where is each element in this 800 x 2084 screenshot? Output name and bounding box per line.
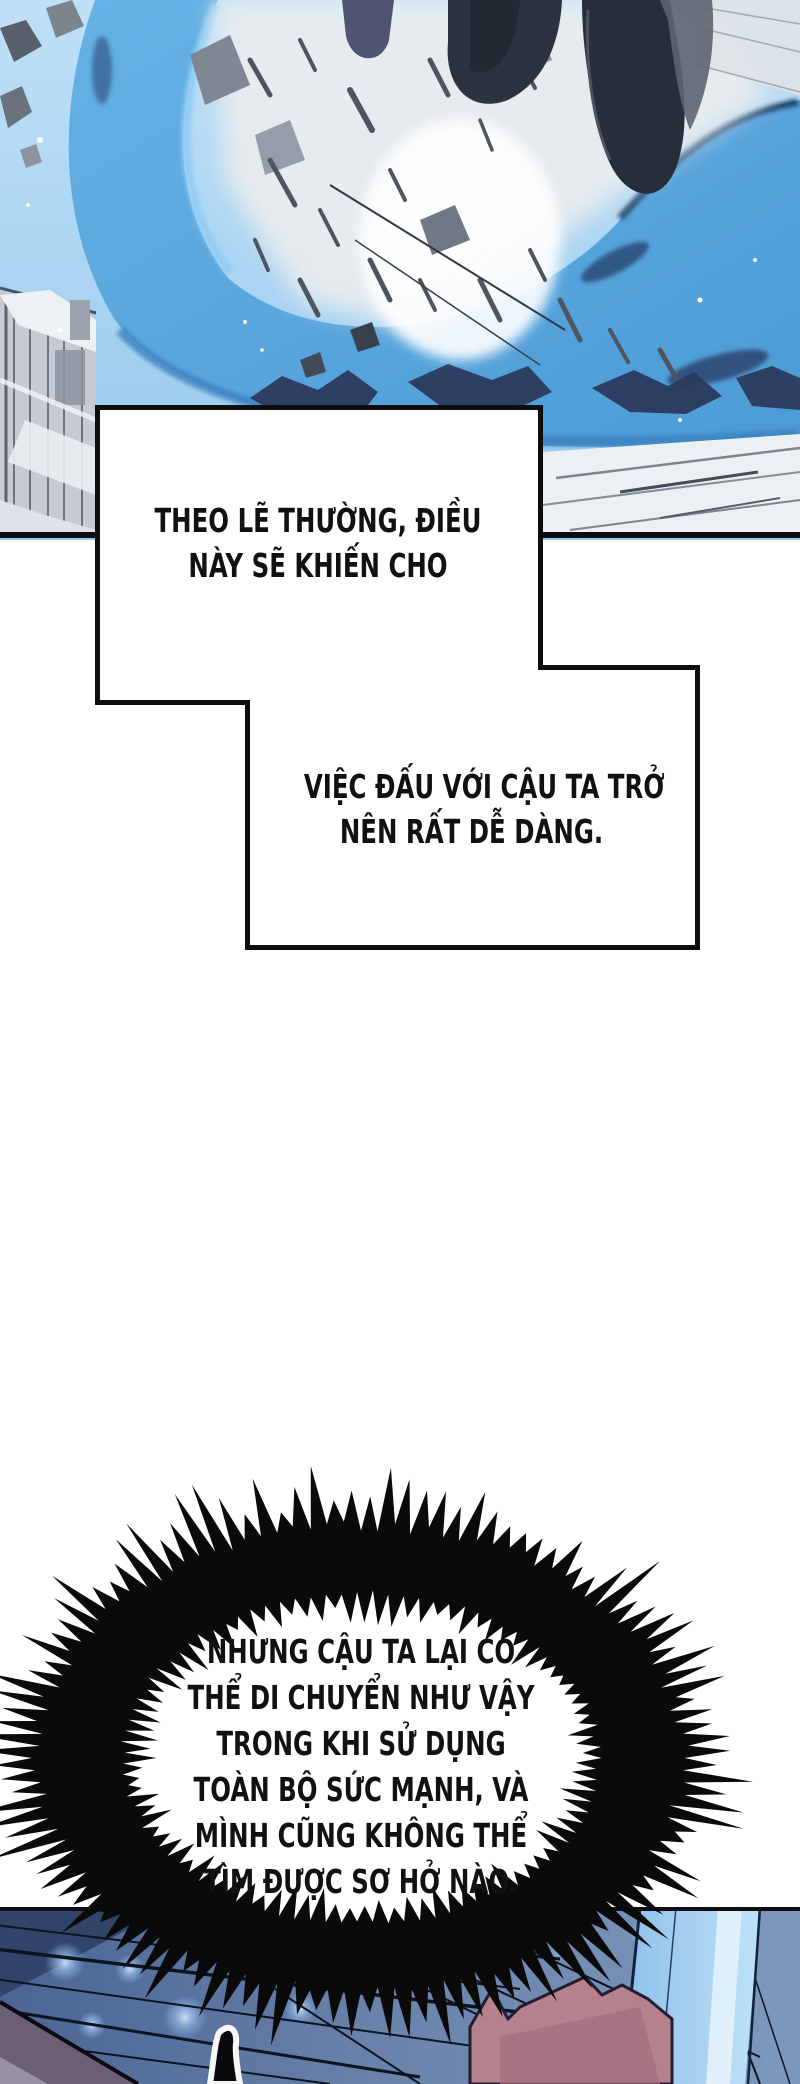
speech-line: TRONG KHI SỬ DỤNG (176, 1721, 546, 1767)
speech-box-1: THEO LẼ THƯỜNG, ĐIỀU NÀY SẼ KHIẾN CHO (95, 498, 541, 588)
speech-line: NHƯNG CẬU TA LẠI CÓ (176, 1629, 546, 1675)
speech-line: NÊN RẤT DỄ DÀNG. (304, 809, 639, 854)
burst-bubble-text: NHƯNG CẬU TA LẠI CÓ THỂ DI CHUYỂN NHƯ VẬ… (111, 1629, 611, 1905)
speech-line: TOÀN BỘ SỨC MẠNH, VÀ (176, 1767, 546, 1813)
speech-line: THEO LẼ THƯỜNG, ĐIỀU (153, 498, 483, 543)
speech-line: MÌNH CŨNG KHÔNG THỂ (176, 1813, 546, 1859)
speech-line: THỂ DI CHUYỂN NHƯ VẬY (176, 1675, 546, 1721)
speech-box-2: VIỆC ĐẤU VỚI CẬU TA TRỞ NÊN RẤT DỄ DÀNG. (245, 764, 698, 854)
speech-line: TÌM ĐƯỢC SƠ HỞ NÀO. (176, 1859, 546, 1905)
speech-line: VIỆC ĐẤU VỚI CẬU TA TRỞ (304, 764, 639, 809)
speech-line: NÀY SẼ KHIẾN CHO (153, 543, 483, 588)
speech-box-outline (98, 408, 698, 948)
